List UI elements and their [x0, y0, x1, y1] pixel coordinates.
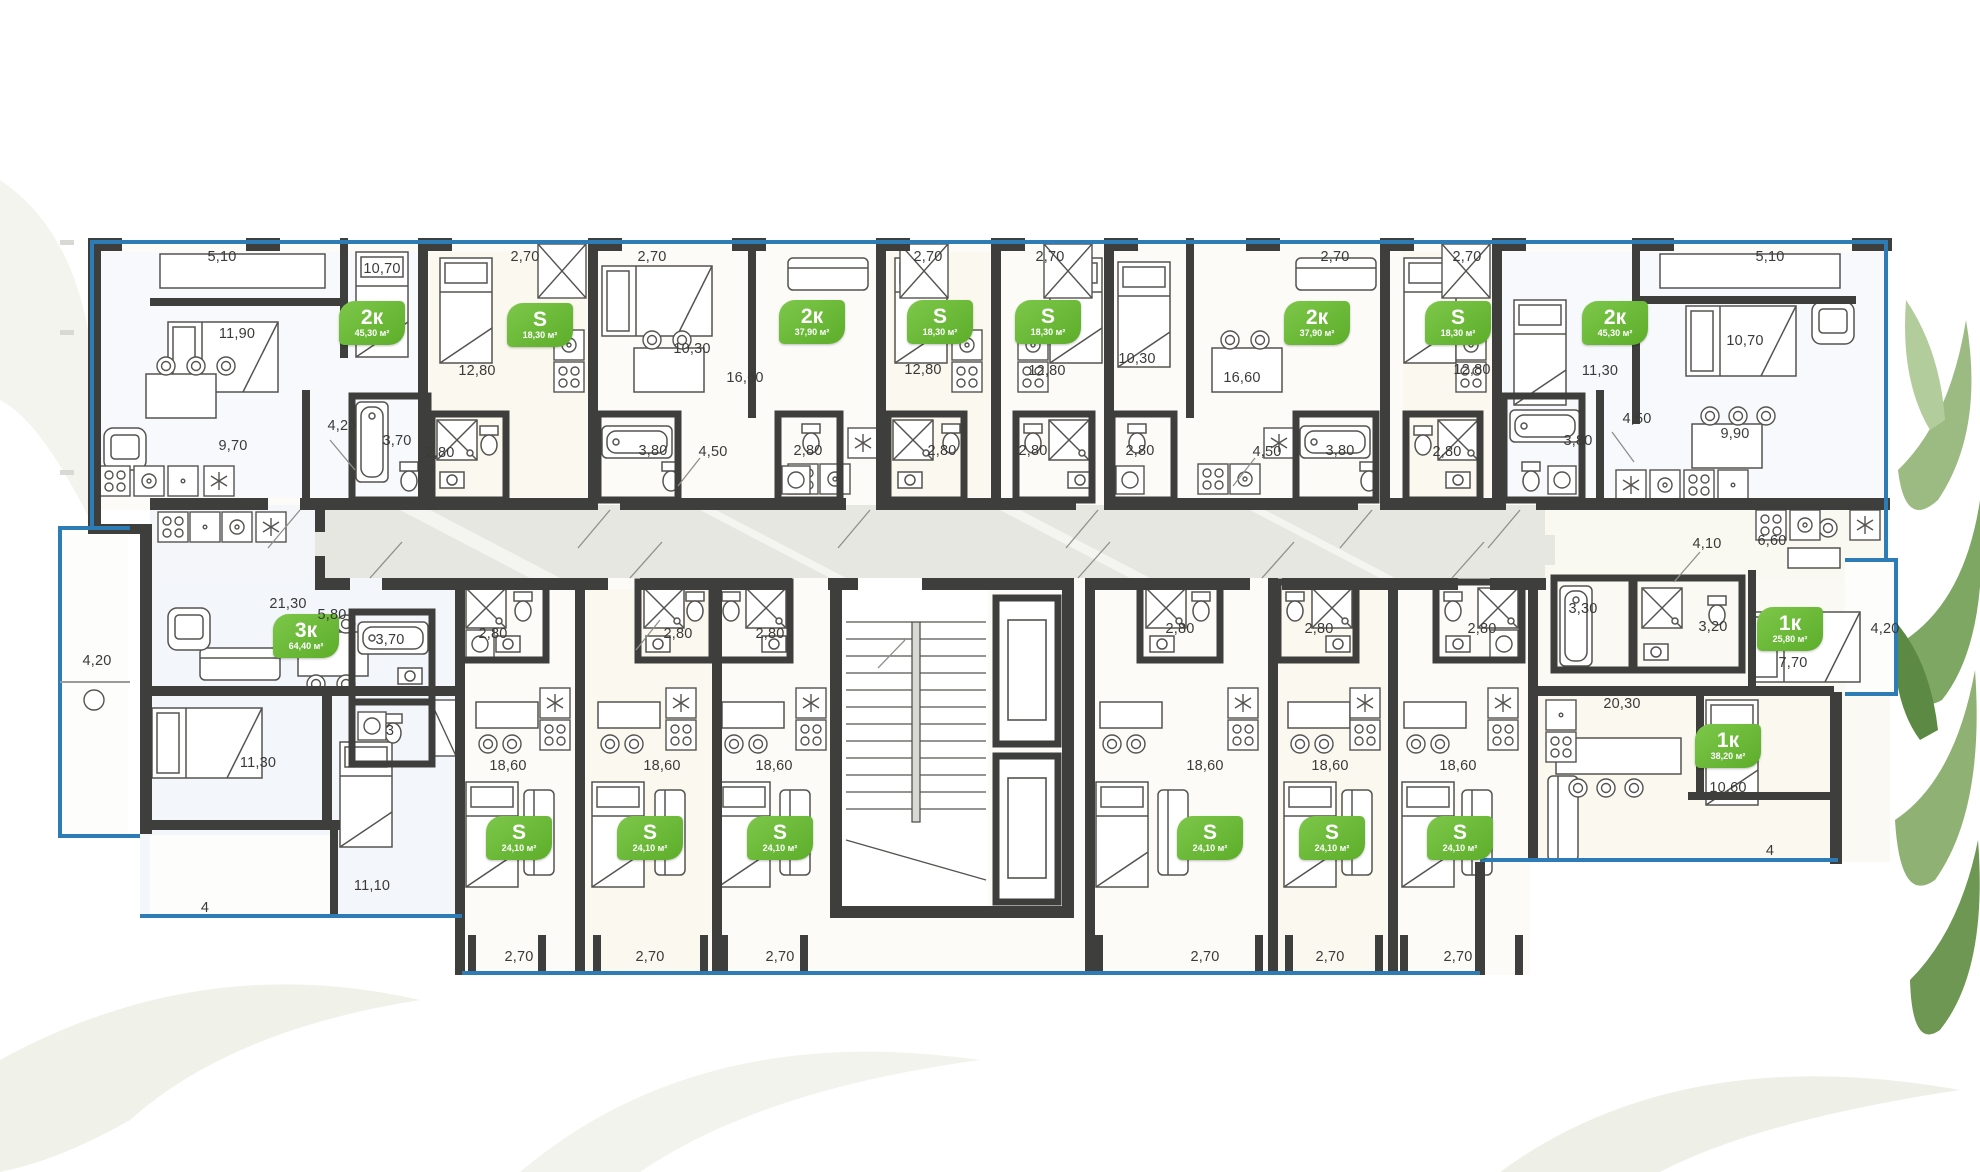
apartment-type: S — [1203, 822, 1217, 843]
plan-drawing — [0, 0, 1980, 1172]
apartment-badge[interactable]: 3к64,40 м² — [273, 614, 339, 658]
apartment-area: 25,80 м² — [1773, 634, 1808, 645]
apartment-area: 24,10 м² — [1315, 843, 1350, 854]
apartment-area: 64,40 м² — [289, 641, 324, 652]
apartment-badge[interactable]: S24,10 м² — [1177, 816, 1243, 860]
apartment-type: S — [533, 309, 547, 330]
apartment-badge[interactable]: 2к45,30 м² — [339, 301, 405, 345]
apartment-badge[interactable]: S18,30 м² — [1425, 301, 1491, 345]
apartment-area: 24,10 м² — [1443, 843, 1478, 854]
apartment-type: 2к — [801, 306, 823, 327]
apartment-type: 2к — [1306, 307, 1328, 328]
apartment-area: 18,30 м² — [923, 327, 958, 338]
apartment-badge[interactable]: S24,10 м² — [747, 816, 813, 860]
apartment-area: 18,30 м² — [523, 330, 558, 341]
apartment-area: 37,90 м² — [795, 327, 830, 338]
apartment-area: 38,20 м² — [1711, 751, 1746, 762]
apartment-area: 24,10 м² — [763, 843, 798, 854]
apartment-area: 45,30 м² — [355, 328, 390, 339]
leaf-decoration — [1894, 300, 1980, 1034]
apartment-type: 2к — [1604, 307, 1626, 328]
apartment-badge[interactable]: 2к45,30 м² — [1582, 301, 1648, 345]
apartment-badge[interactable]: S18,30 м² — [1015, 300, 1081, 344]
apartment-badge[interactable]: S24,10 м² — [486, 816, 552, 860]
apartment-badge[interactable]: S18,30 м² — [907, 300, 973, 344]
apartment-area: 45,30 м² — [1598, 328, 1633, 339]
apartment-type: 3к — [295, 620, 317, 641]
apartment-area: 18,30 м² — [1031, 327, 1066, 338]
apartment-type: 2к — [361, 307, 383, 328]
apartment-type: S — [1451, 307, 1465, 328]
apartment-badge[interactable]: 1к38,20 м² — [1695, 724, 1761, 768]
apartment-area: 24,10 м² — [633, 843, 668, 854]
floor-plan-canvas: 2к45,30 м²S18,30 м²2к37,90 м²S18,30 м²S1… — [0, 0, 1980, 1172]
apartment-type: 1к — [1779, 613, 1801, 634]
apartment-area: 37,90 м² — [1300, 328, 1335, 339]
apartment-type: S — [1453, 822, 1467, 843]
apartment-badge[interactable]: 2к37,90 м² — [1284, 301, 1350, 345]
apartment-badge[interactable]: 1к25,80 м² — [1757, 607, 1823, 651]
apartment-area: 18,30 м² — [1441, 328, 1476, 339]
apartment-badge[interactable]: 2к37,90 м² — [779, 300, 845, 344]
apartment-type: S — [512, 822, 526, 843]
apartment-badge[interactable]: S24,10 м² — [617, 816, 683, 860]
apartment-type: S — [1325, 822, 1339, 843]
apartment-area: 24,10 м² — [1193, 843, 1228, 854]
apartment-badge[interactable]: S24,10 м² — [1427, 816, 1493, 860]
apartment-badge[interactable]: S24,10 м² — [1299, 816, 1365, 860]
apartment-badge[interactable]: S18,30 м² — [507, 303, 573, 347]
apartment-type: S — [643, 822, 657, 843]
apartment-type: S — [1041, 306, 1055, 327]
apartment-area: 24,10 м² — [502, 843, 537, 854]
apartment-type: S — [933, 306, 947, 327]
apartment-type: 1к — [1717, 730, 1739, 751]
apartment-type: S — [773, 822, 787, 843]
